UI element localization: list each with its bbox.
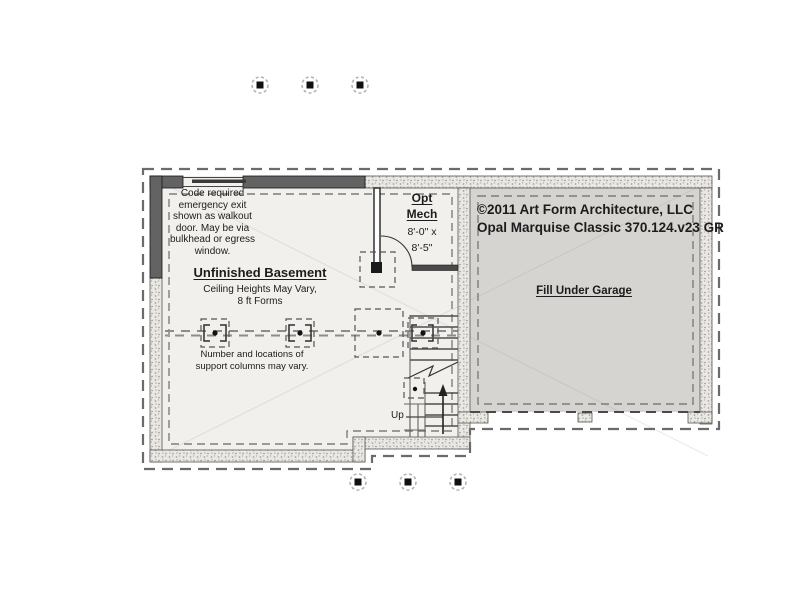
copyright-block: ©2011 Art Form Architecture, LLC Opal Ma… [477,201,724,236]
fill-under-garage-label: Fill Under Garage [503,285,665,297]
columns-note: Number and locations of support columns … [172,349,332,372]
registration-marker [352,77,368,93]
copyright-line-2: Opal Marquise Classic 370.124.v23 GR [477,219,724,237]
basement-subtitle: Ceiling Heights May Vary, 8 ft Forms [175,284,345,308]
beam-post [371,262,382,273]
copyright-line-1: ©2011 Art Form Architecture, LLC [477,201,724,219]
registration-marker [252,77,268,93]
registration-marker [350,474,366,490]
opt-mech-label: Opt Mech [393,191,451,222]
registration-marker [400,474,416,490]
registration-marker [450,474,466,490]
basement-title: Unfinished Basement [175,265,345,280]
basement-floor-plan-sheet: Code required emergency exit shown as wa… [0,0,800,599]
up-label: Up [391,410,413,421]
registration-marker [302,77,318,93]
egress-note: Code required emergency exit shown as wa… [135,188,290,258]
floor-plan-drawing [0,0,800,599]
opt-mech-dimensions: 8'-0" x 8'-5" [391,224,453,256]
